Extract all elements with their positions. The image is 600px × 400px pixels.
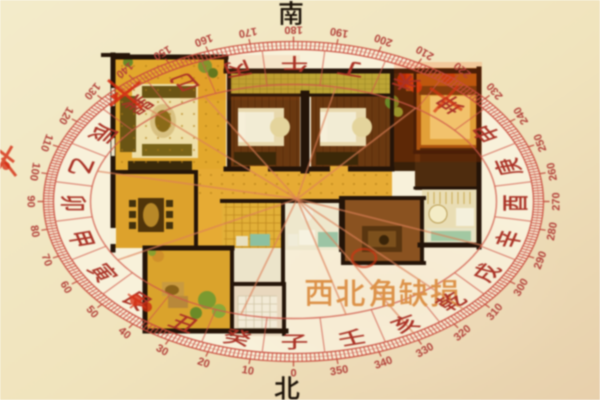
svg-text:0: 0 bbox=[290, 368, 296, 380]
svg-text:90: 90 bbox=[25, 195, 37, 207]
svg-text:270: 270 bbox=[551, 192, 563, 210]
svg-text:80: 80 bbox=[28, 224, 42, 238]
svg-text:180: 180 bbox=[284, 24, 302, 36]
svg-text:10: 10 bbox=[241, 364, 255, 378]
